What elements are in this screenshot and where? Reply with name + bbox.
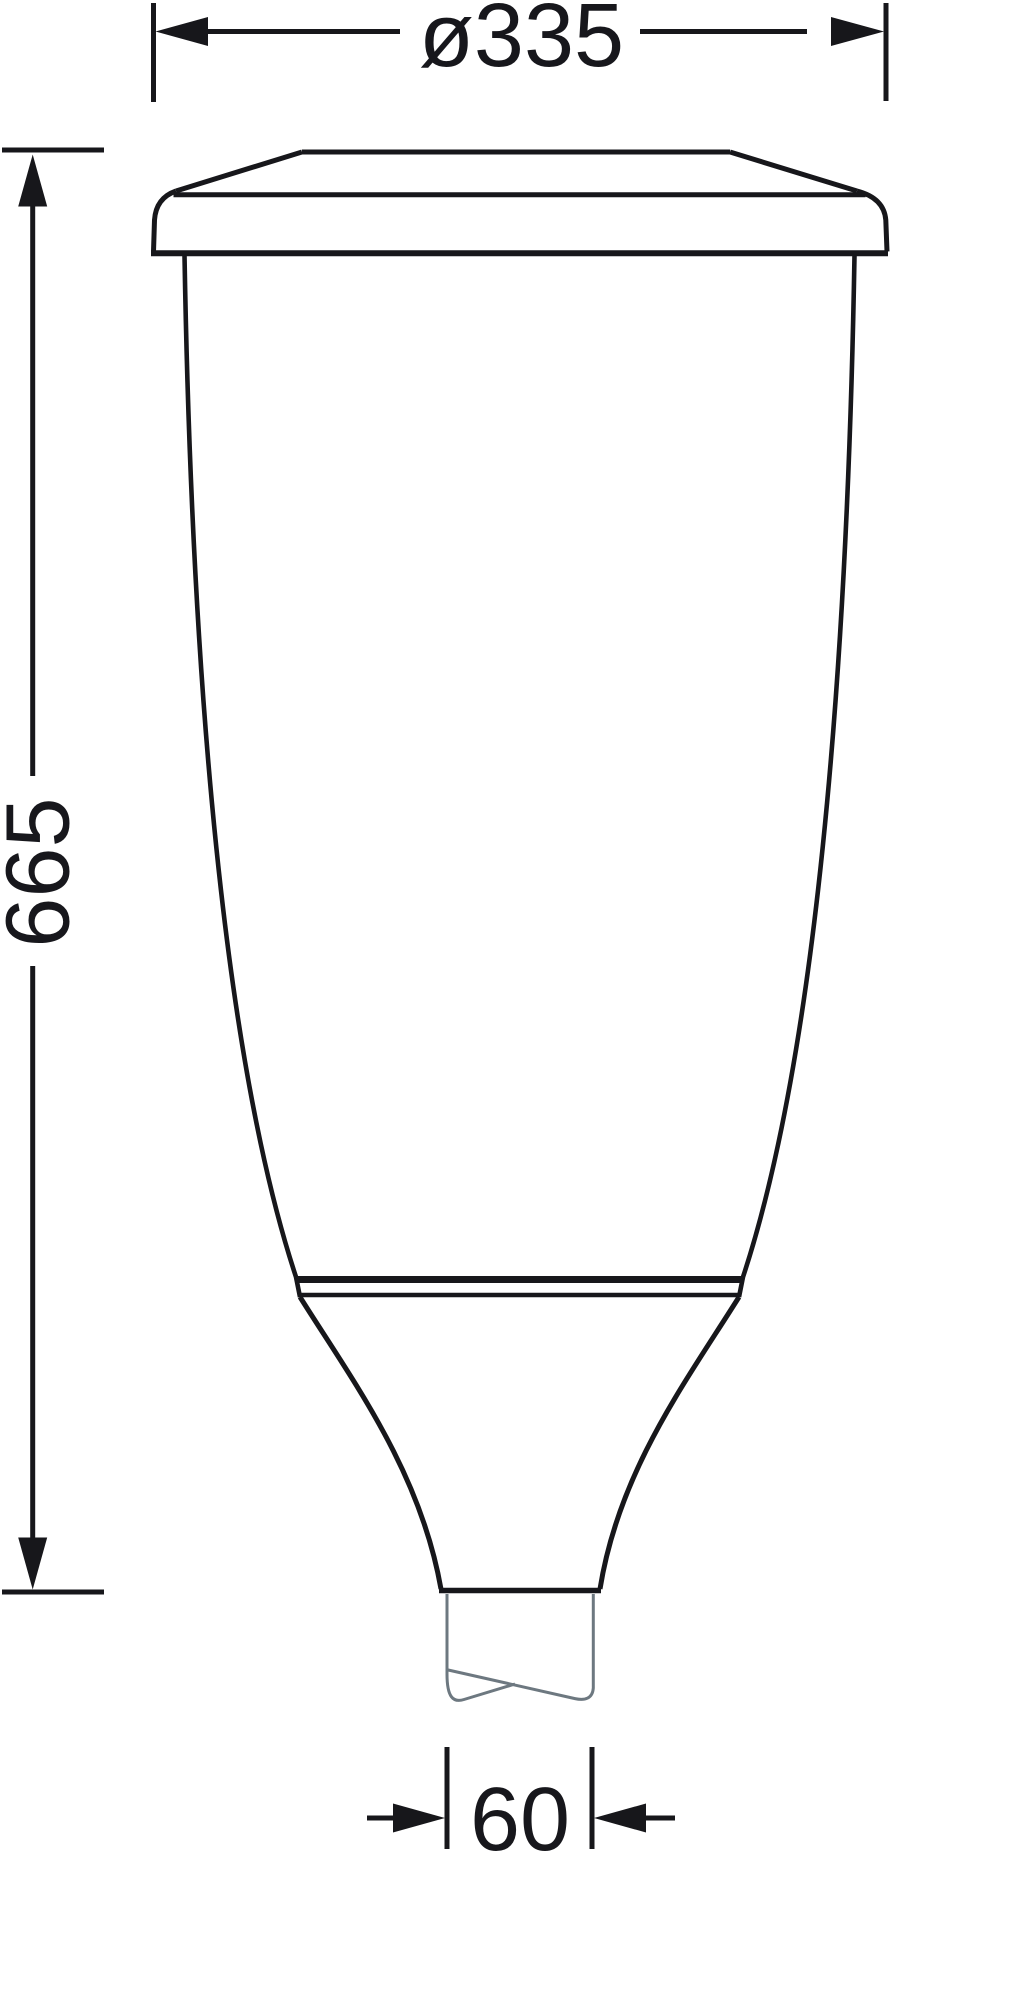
svg-text:665: 665 [0, 797, 89, 947]
svg-text:ø335: ø335 [419, 0, 624, 86]
svg-text:60: 60 [470, 1770, 570, 1870]
